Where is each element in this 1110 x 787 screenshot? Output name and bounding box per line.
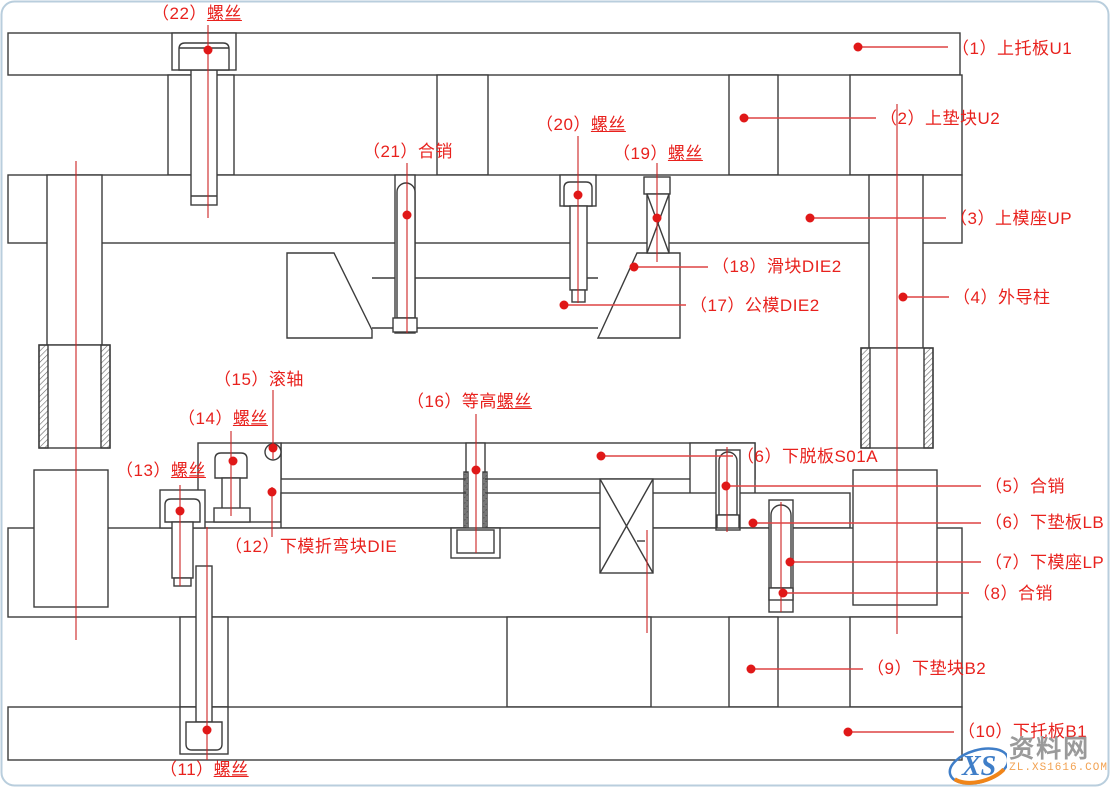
callout-name: 公模DIE2 <box>745 296 820 315</box>
callout-num: （21） <box>363 142 418 161</box>
callout-name-underlined: 螺丝 <box>207 4 242 23</box>
callout-14: （14）螺丝 <box>178 409 268 428</box>
callout-num: （7） <box>985 553 1030 572</box>
callout-name: 下模座LP <box>1030 553 1104 572</box>
callout-13: （13）螺丝 <box>116 461 206 480</box>
callout-4: （4）外导柱 <box>953 288 1050 307</box>
callout-6-backing: （6）下垫板LB <box>985 513 1104 532</box>
callout-21: （21）合销 <box>363 142 453 161</box>
watermark-site-name: 资料网 <box>1009 736 1108 762</box>
callout-num: （17） <box>690 296 745 315</box>
callout-name-underlined: 螺丝 <box>214 760 249 779</box>
callout-num: （6） <box>985 513 1030 532</box>
callout-name: 下垫块B2 <box>912 659 986 678</box>
callout-name-underlined: 螺丝 <box>497 392 532 411</box>
callout-22: （22）螺丝 <box>152 4 242 23</box>
watermark: XS 资料网 ZL.XS1616.COM <box>946 736 1108 787</box>
callout-name: 外导柱 <box>998 288 1051 307</box>
callout-name: 等高 <box>462 392 497 411</box>
callout-name-underlined: 螺丝 <box>171 461 206 480</box>
callout-num: （15） <box>214 370 269 389</box>
callout-name: 上模座UP <box>995 209 1072 228</box>
callout-num: （13） <box>116 461 171 480</box>
callout-num: （20） <box>536 115 591 134</box>
callout-num: （4） <box>953 288 998 307</box>
callout-name: 下脱板S01A <box>782 447 878 466</box>
callout-name: 合销 <box>1018 584 1053 603</box>
callout-1: （1）上托板U1 <box>952 39 1072 58</box>
die-assembly-diagram: （1）上托板U1 （2）上垫块U2 （3）上模座UP （4）外导柱 （5）合销 … <box>0 0 1110 787</box>
callout-name-underlined: 螺丝 <box>668 144 703 163</box>
callout-8: （8）合销 <box>973 584 1053 603</box>
callout-name: 上垫块U2 <box>925 109 1000 128</box>
callout-name: 合销 <box>1030 477 1065 496</box>
callout-7: （7）下模座LP <box>985 553 1104 572</box>
callout-3: （3）上模座UP <box>950 209 1072 228</box>
callout-num: （11） <box>160 760 214 779</box>
callout-2: （2）上垫块U2 <box>880 109 1000 128</box>
callout-num: （6） <box>737 447 782 466</box>
callout-16: （16）等高螺丝 <box>407 392 532 411</box>
callout-num: （8） <box>973 584 1018 603</box>
callout-17: （17）公模DIE2 <box>690 296 820 315</box>
callout-name: 合销 <box>418 142 453 161</box>
callout-name-underlined: 螺丝 <box>591 115 626 134</box>
watermark-site-url: ZL.XS1616.COM <box>1009 762 1108 774</box>
callout-name: 滚轴 <box>269 370 304 389</box>
callout-name: 下垫板LB <box>1030 513 1104 532</box>
callout-num: （3） <box>950 209 995 228</box>
callout-num: （16） <box>407 392 462 411</box>
callout-12: （12）下模折弯块DIE <box>225 537 397 556</box>
watermark-logo-text: XS <box>961 751 996 782</box>
callout-19: （19）螺丝 <box>613 144 703 163</box>
callout-num: （18） <box>712 257 767 276</box>
callout-20: （20）螺丝 <box>536 115 626 134</box>
callout-num: （1） <box>952 39 997 58</box>
watermark-logo: XS <box>946 736 1007 787</box>
callout-9: （9）下垫块B2 <box>867 659 986 678</box>
callout-num: （9） <box>867 659 912 678</box>
callout-num: （12） <box>225 537 280 556</box>
callout-num: （22） <box>152 4 207 23</box>
callout-name: 滑块DIE2 <box>767 257 842 276</box>
callout-18: （18）滑块DIE2 <box>712 257 842 276</box>
callout-num: （5） <box>985 477 1030 496</box>
callout-15: （15）滚轴 <box>214 370 304 389</box>
callout-name: 下模折弯块DIE <box>280 537 397 556</box>
callout-5: （5）合销 <box>985 477 1065 496</box>
callout-num: （19） <box>613 144 668 163</box>
callout-11: （11）螺丝 <box>160 760 249 779</box>
callout-6-stripper: （6）下脱板S01A <box>737 447 878 466</box>
callout-num: （14） <box>178 409 233 428</box>
callout-num: （2） <box>880 109 925 128</box>
callout-name: 上托板U1 <box>997 39 1072 58</box>
callout-name-underlined: 螺丝 <box>233 409 268 428</box>
